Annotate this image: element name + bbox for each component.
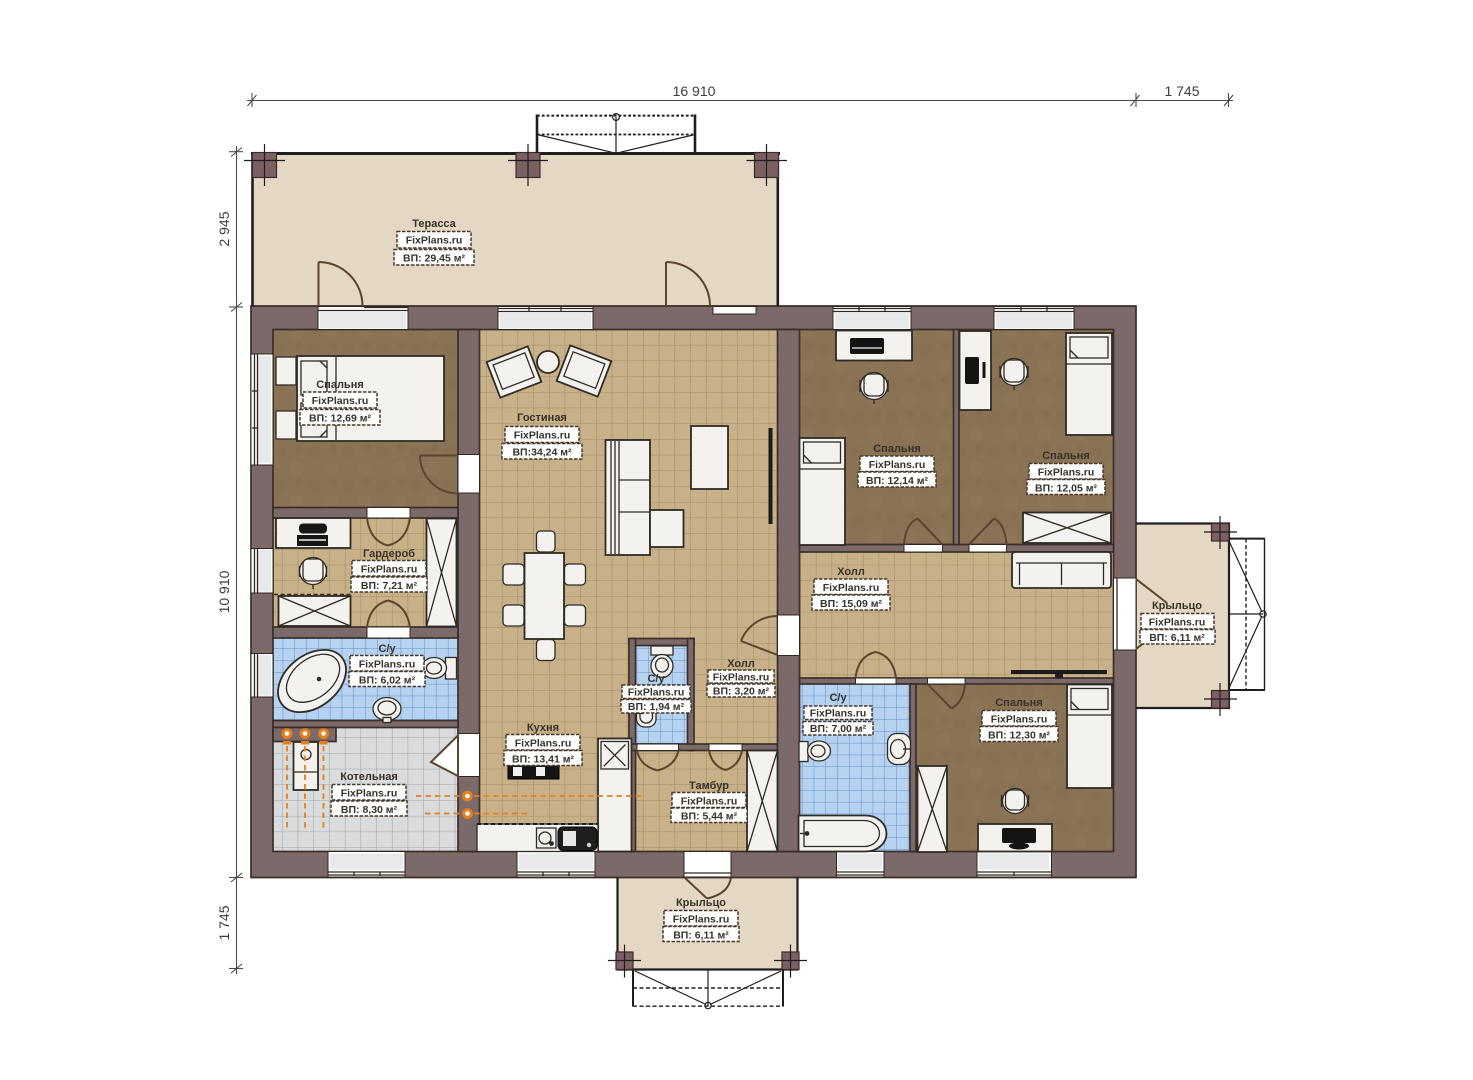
svg-text:Кухня: Кухня xyxy=(527,722,559,734)
svg-text:С/у: С/у xyxy=(647,673,665,685)
svg-text:FixPlans.ru: FixPlans.ru xyxy=(515,738,572,750)
svg-text:16 910: 16 910 xyxy=(673,83,716,99)
svg-text:FixPlans.ru: FixPlans.ru xyxy=(514,430,571,442)
svg-text:Холл: Холл xyxy=(837,566,865,578)
svg-text:ВП: 12,14 м²: ВП: 12,14 м² xyxy=(866,475,929,487)
svg-text:FixPlans.ru: FixPlans.ru xyxy=(991,714,1048,726)
svg-text:FixPlans.ru: FixPlans.ru xyxy=(810,708,867,720)
svg-text:Спальня: Спальня xyxy=(995,697,1043,709)
svg-text:Крыльцо: Крыльцо xyxy=(1152,600,1202,612)
svg-text:ВП: 6,11 м²: ВП: 6,11 м² xyxy=(1149,632,1205,644)
svg-text:Спальня: Спальня xyxy=(316,379,364,391)
svg-text:Гардероб: Гардероб xyxy=(363,548,415,560)
svg-text:FixPlans.ru: FixPlans.ru xyxy=(1038,467,1095,479)
svg-text:ВП: 29,45 м²: ВП: 29,45 м² xyxy=(403,253,466,265)
svg-text:1 745: 1 745 xyxy=(1164,83,1199,99)
svg-text:Спальня: Спальня xyxy=(1042,450,1090,462)
svg-text:FixPlans.ru: FixPlans.ru xyxy=(406,235,463,247)
svg-text:ВП: 7,21 м²: ВП: 7,21 м² xyxy=(361,580,418,592)
svg-text:Спальня: Спальня xyxy=(873,443,921,455)
svg-text:ВП: 13,41 м²: ВП: 13,41 м² xyxy=(512,754,575,766)
svg-text:FixPlans.ru: FixPlans.ru xyxy=(869,459,926,471)
svg-text:ВП: 12,05 м²: ВП: 12,05 м² xyxy=(1035,483,1098,495)
svg-text:ВП: 15,09 м²: ВП: 15,09 м² xyxy=(820,598,883,610)
svg-text:Тамбур: Тамбур xyxy=(689,780,729,792)
svg-text:ВП:34,24 м²: ВП:34,24 м² xyxy=(512,447,572,459)
svg-text:FixPlans.ru: FixPlans.ru xyxy=(713,672,770,684)
svg-text:FixPlans.ru: FixPlans.ru xyxy=(359,659,416,671)
svg-text:ВП: 8,30 м²: ВП: 8,30 м² xyxy=(341,804,398,816)
svg-text:2 945: 2 945 xyxy=(216,211,232,246)
svg-text:FixPlans.ru: FixPlans.ru xyxy=(823,582,880,594)
svg-text:ВП: 7,00 м²: ВП: 7,00 м² xyxy=(810,723,867,735)
svg-text:Терасса: Терасса xyxy=(412,218,456,230)
svg-text:FixPlans.ru: FixPlans.ru xyxy=(341,788,398,800)
svg-text:С/у: С/у xyxy=(829,692,847,704)
svg-text:Холл: Холл xyxy=(727,658,755,670)
svg-text:FixPlans.ru: FixPlans.ru xyxy=(312,395,369,407)
svg-text:Котельная: Котельная xyxy=(340,771,398,783)
svg-text:Крыльцо: Крыльцо xyxy=(676,897,726,909)
svg-text:С/у: С/у xyxy=(378,643,396,655)
svg-text:FixPlans.ru: FixPlans.ru xyxy=(1149,617,1206,629)
svg-text:ВП: 1,94 м²: ВП: 1,94 м² xyxy=(628,701,685,713)
svg-text:ВП: 6,11 м²: ВП: 6,11 м² xyxy=(673,930,729,942)
svg-text:Гостиная: Гостиная xyxy=(517,412,567,424)
svg-text:FixPlans.ru: FixPlans.ru xyxy=(628,687,685,699)
svg-text:ВП: 5,44 м²: ВП: 5,44 м² xyxy=(681,811,738,823)
svg-text:1 745: 1 745 xyxy=(216,905,232,940)
svg-text:FixPlans.ru: FixPlans.ru xyxy=(681,796,738,808)
svg-text:FixPlans.ru: FixPlans.ru xyxy=(361,564,418,576)
svg-text:FixPlans.ru: FixPlans.ru xyxy=(673,914,730,926)
svg-text:ВП: 12,69 м²: ВП: 12,69 м² xyxy=(309,413,372,425)
svg-text:ВП: 12,30 м²: ВП: 12,30 м² xyxy=(988,730,1051,742)
svg-text:ВП: 6,02 м²: ВП: 6,02 м² xyxy=(359,675,416,687)
svg-text:ВП: 3,20 м²: ВП: 3,20 м² xyxy=(713,686,770,698)
svg-text:10 910: 10 910 xyxy=(216,570,232,613)
